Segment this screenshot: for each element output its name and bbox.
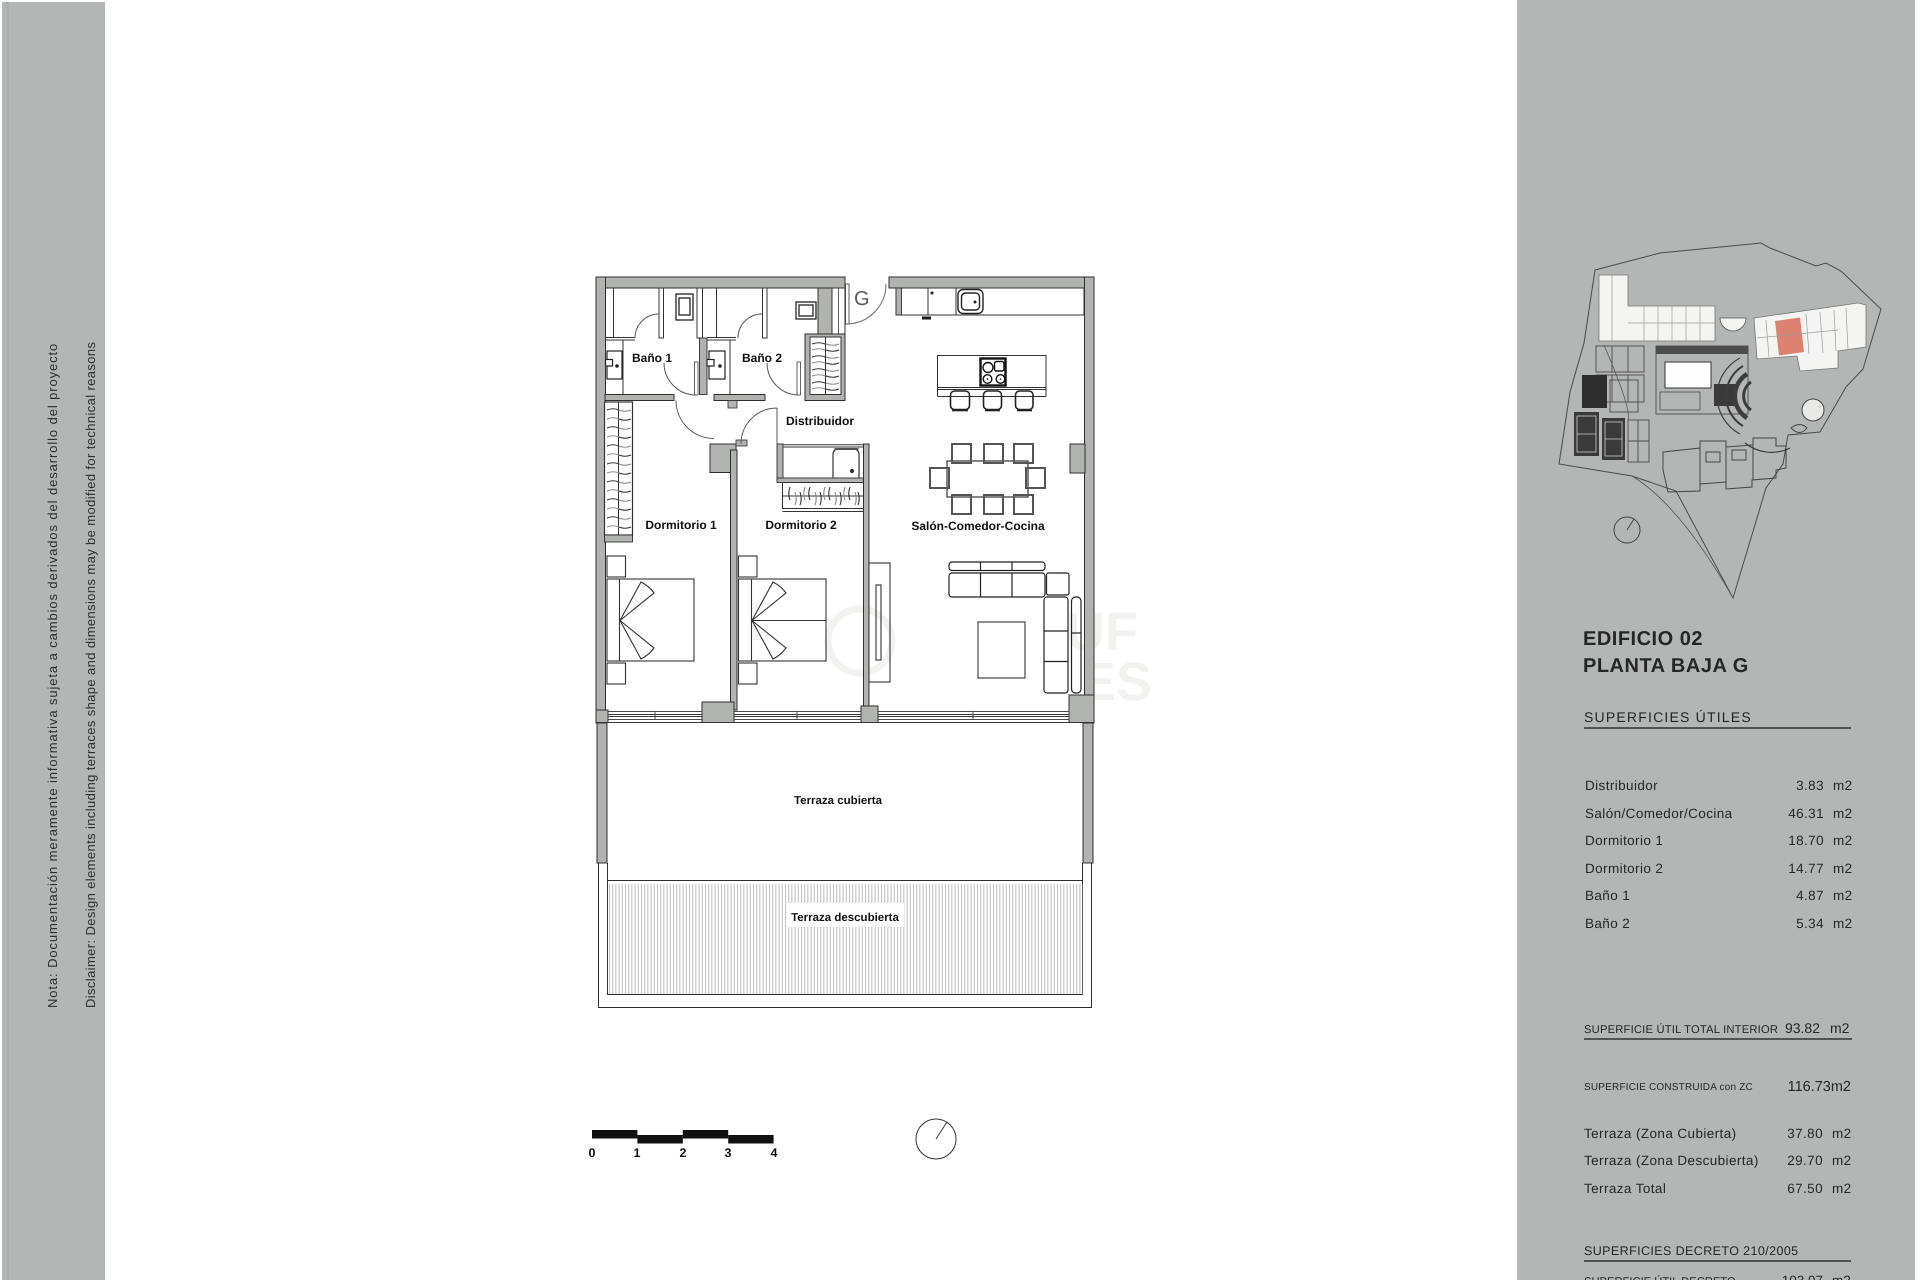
svg-text:Salón/Comedor/Cocina: Salón/Comedor/Cocina (1585, 806, 1733, 821)
svg-text:18.70: 18.70 (1788, 833, 1824, 848)
svg-text:Distribuidor: Distribuidor (786, 414, 854, 428)
svg-text:Nota: Documentación meramente: Nota: Documentación meramente informativ… (45, 343, 60, 1008)
svg-text:Disclaimer: Design elements in: Disclaimer: Design elements including te… (83, 342, 98, 1008)
svg-text:Terraza cubierta: Terraza cubierta (794, 795, 883, 807)
svg-text:14.77: 14.77 (1788, 861, 1824, 876)
svg-text:116.73m2: 116.73m2 (1788, 1079, 1851, 1095)
svg-text:1: 1 (634, 1146, 641, 1160)
svg-text:m2: m2 (1833, 778, 1853, 793)
svg-text:103.07: 103.07 (1782, 1273, 1823, 1280)
svg-text:SUPERFICIE CONSTRUIDA con ZC: SUPERFICIE CONSTRUIDA con ZC (1584, 1082, 1753, 1093)
svg-text:Dormitorio 1: Dormitorio 1 (1585, 833, 1663, 848)
svg-text:Terraza (Zona Cubierta): Terraza (Zona Cubierta) (1584, 1126, 1737, 1141)
svg-text:SUPERFICIE ÚTIL DECRETO: SUPERFICIE ÚTIL DECRETO (1584, 1275, 1736, 1280)
svg-text:5.34: 5.34 (1796, 916, 1824, 931)
svg-text:Distribuidor: Distribuidor (1585, 778, 1658, 793)
svg-text:4.87: 4.87 (1796, 888, 1824, 903)
svg-text:m2: m2 (1833, 888, 1853, 903)
svg-text:Terraza Total: Terraza Total (1584, 1181, 1666, 1196)
svg-text:SUPERFICIES ÚTILES: SUPERFICIES ÚTILES (1584, 709, 1752, 725)
svg-text:m2: m2 (1832, 1273, 1851, 1280)
svg-text:Baño 2: Baño 2 (1585, 916, 1630, 931)
svg-text:67.50: 67.50 (1787, 1181, 1823, 1196)
svg-text:3: 3 (725, 1146, 732, 1160)
svg-text:G: G (854, 288, 870, 310)
svg-text:PLANTA BAJA G: PLANTA BAJA G (1583, 655, 1749, 677)
svg-text:m2: m2 (1832, 1181, 1852, 1196)
svg-text:m2: m2 (1832, 1126, 1852, 1141)
svg-text:0: 0 (589, 1146, 596, 1160)
svg-text:SUPERFICIE ÚTIL TOTAL INTERIOR: SUPERFICIE ÚTIL TOTAL INTERIOR (1584, 1023, 1778, 1036)
svg-text:29.70: 29.70 (1787, 1153, 1823, 1168)
svg-text:46.31: 46.31 (1788, 806, 1824, 821)
svg-text:3.83: 3.83 (1796, 778, 1824, 793)
svg-text:m2: m2 (1833, 806, 1853, 821)
svg-text:Dormitorio 2: Dormitorio 2 (765, 518, 837, 532)
svg-text:Baño 2: Baño 2 (742, 351, 782, 365)
svg-text:Baño 1: Baño 1 (1585, 888, 1630, 903)
svg-text:EDIFICIO 02: EDIFICIO 02 (1583, 628, 1703, 650)
svg-text:Terraza (Zona Descubierta): Terraza (Zona Descubierta) (1584, 1153, 1759, 1168)
svg-text:Dormitorio 2: Dormitorio 2 (1585, 861, 1663, 876)
svg-text:m2: m2 (1833, 916, 1853, 931)
svg-text:Terraza descubierta: Terraza descubierta (791, 912, 899, 924)
svg-text:Baño 1: Baño 1 (632, 351, 672, 365)
svg-text:m2: m2 (1830, 1020, 1850, 1036)
svg-text:2: 2 (680, 1146, 687, 1160)
svg-text:4: 4 (771, 1146, 778, 1160)
svg-text:93.82: 93.82 (1785, 1020, 1820, 1036)
svg-text:SUPERFICIES DECRETO 210/2005: SUPERFICIES DECRETO 210/2005 (1584, 1244, 1799, 1258)
svg-text:m2: m2 (1832, 1153, 1852, 1168)
svg-text:Salón-Comedor-Cocina: Salón-Comedor-Cocina (911, 519, 1045, 533)
svg-text:Dormitorio 1: Dormitorio 1 (645, 518, 717, 532)
svg-text:m2: m2 (1833, 833, 1853, 848)
svg-text:37.80: 37.80 (1787, 1126, 1823, 1141)
svg-text:m2: m2 (1833, 861, 1853, 876)
